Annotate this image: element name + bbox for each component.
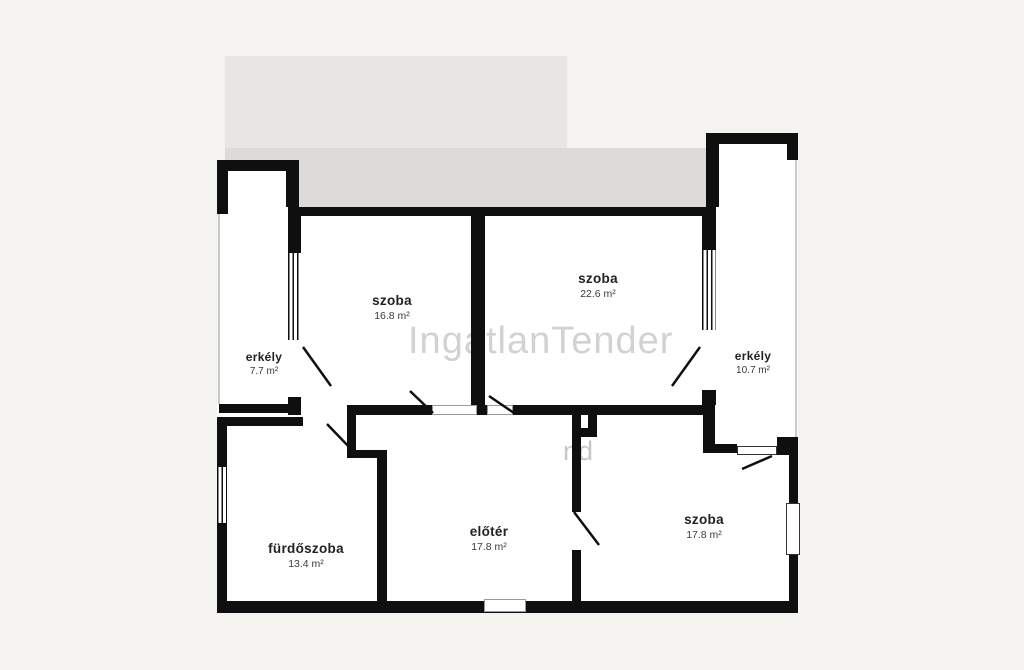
room-label-erkely-left: erkély 7.7 m²	[246, 350, 283, 377]
room-label-eloter: előtér 17.8 m²	[470, 524, 509, 553]
door-swing-room2	[489, 396, 514, 413]
room-name: erkély	[246, 350, 283, 364]
door-swing-lines	[0, 0, 1024, 670]
room-label-erkely-right: erkély 10.7 m²	[735, 349, 772, 376]
room-area: 7.7 m²	[246, 366, 283, 377]
room-label-szoba-1: szoba 16.8 m²	[372, 293, 412, 322]
room-area: 16.8 m²	[372, 310, 412, 322]
door-swing-balcony-left	[303, 347, 331, 386]
door-swing-bathroom	[327, 424, 351, 449]
room-area: 17.8 m²	[470, 541, 509, 553]
room-area: 10.7 m²	[735, 365, 772, 376]
room-area: 17.8 m²	[684, 529, 724, 541]
room-name: szoba	[684, 512, 724, 527]
room-label-szoba-3: szoba 17.8 m²	[684, 512, 724, 541]
room-name: szoba	[372, 293, 412, 308]
room-name: fürdőszoba	[268, 541, 344, 556]
room-area: 13.4 m²	[268, 558, 344, 570]
door-swing-balcony-right	[672, 347, 700, 386]
door-swing-room1	[410, 391, 433, 413]
room-label-szoba-2: szoba 22.6 m²	[578, 271, 618, 300]
door-swing-room3	[574, 512, 599, 545]
door-swing-balcony-room3	[742, 456, 772, 469]
floor-plan: IngatlanTender nd	[0, 0, 1024, 670]
room-name: szoba	[578, 271, 618, 286]
room-name: erkély	[735, 349, 772, 363]
room-label-furdoszoba: fürdőszoba 13.4 m²	[268, 541, 344, 570]
room-name: előtér	[470, 524, 509, 539]
room-area: 22.6 m²	[578, 288, 618, 300]
